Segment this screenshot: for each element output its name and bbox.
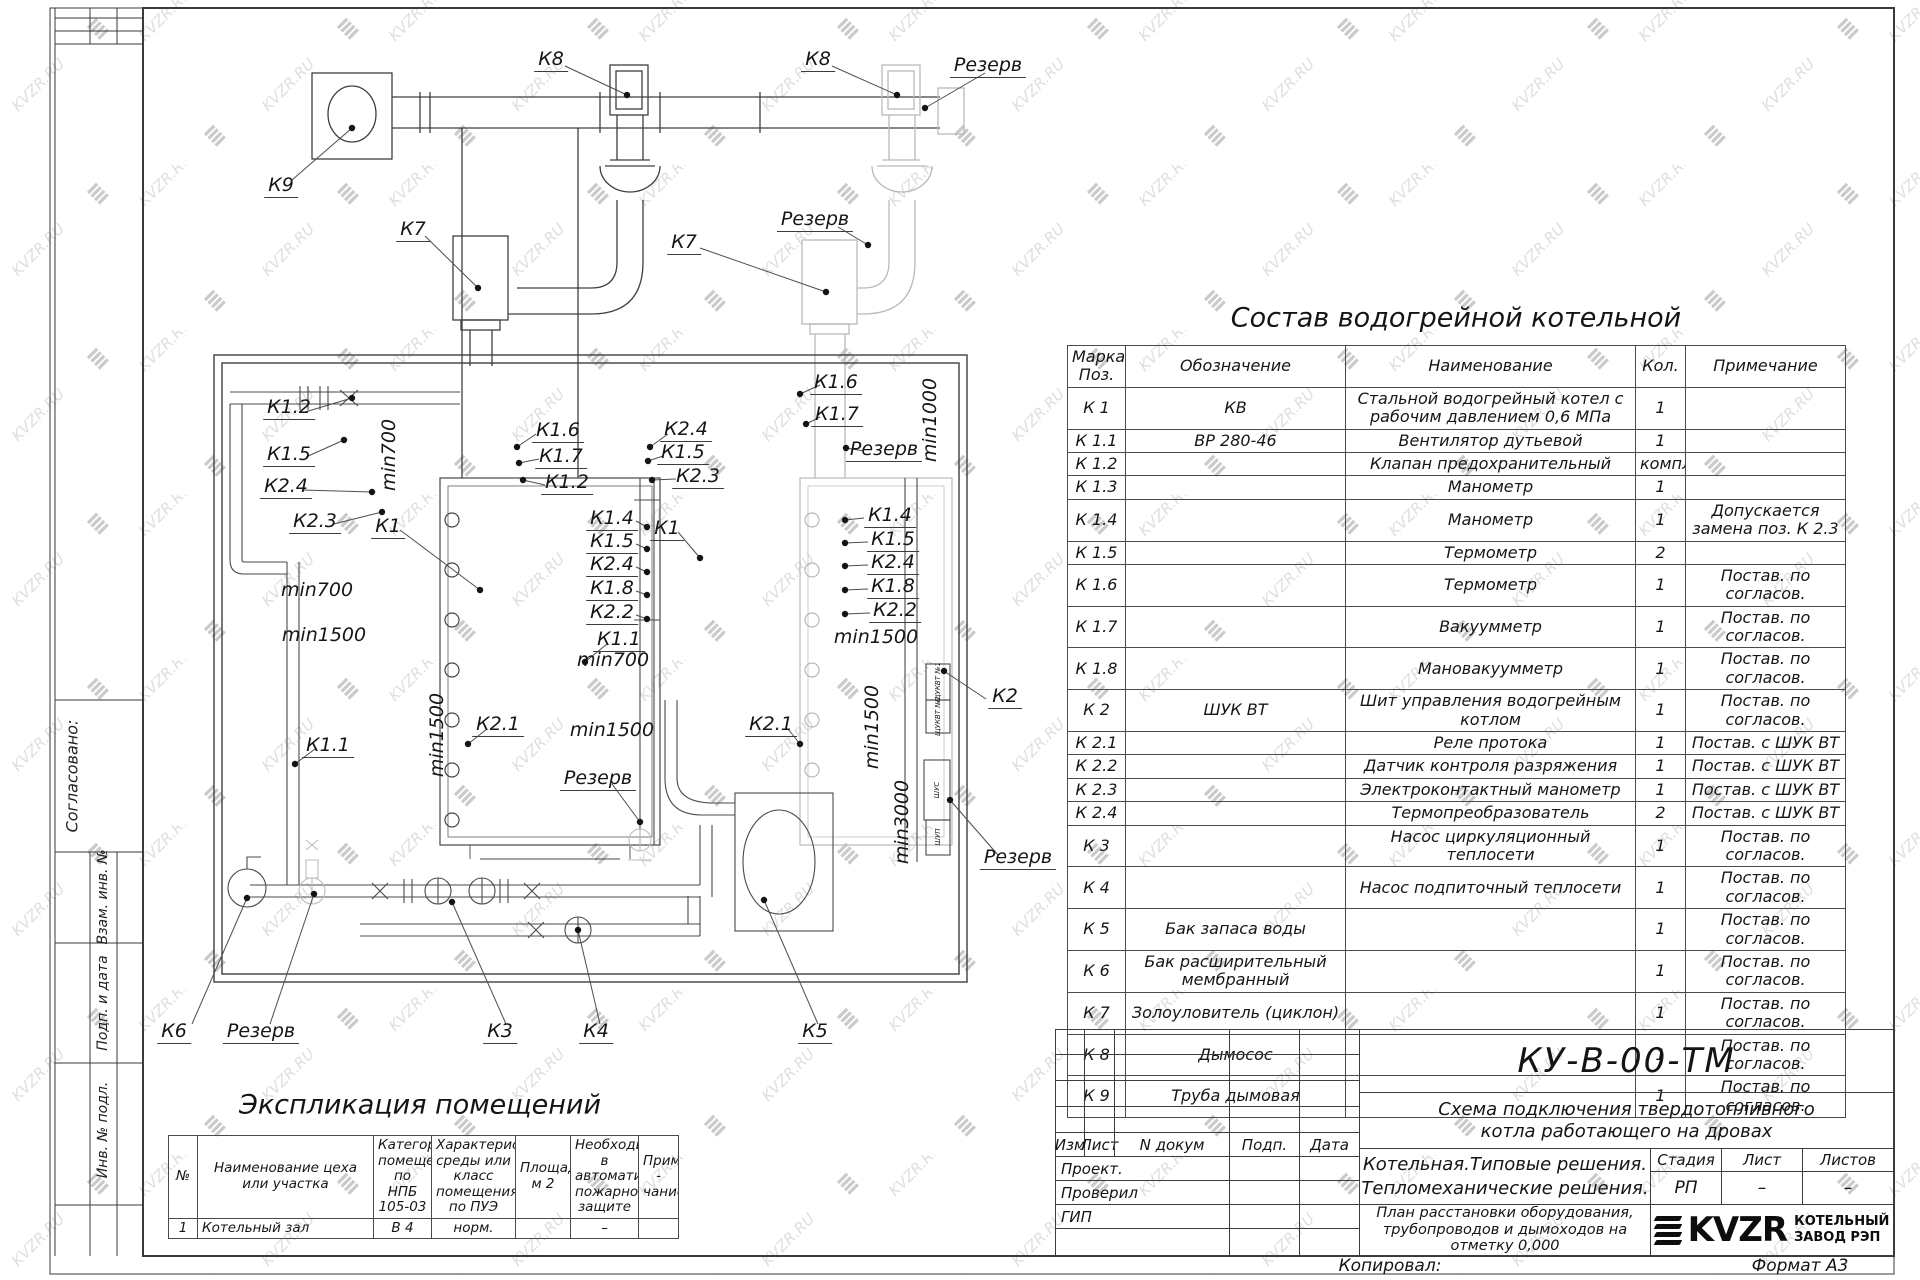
spec-cell: Постав. с ШУК ВТ [1686, 802, 1846, 825]
kvzr-logo: KVZR КОТЕЛЬНЫЙЗАВОД РЭП [1655, 1210, 1890, 1250]
spec-cell: К 1.7 [1068, 606, 1126, 648]
spec-row: К 1.2Клапан предохранительныйкомпл. [1068, 452, 1846, 475]
sidebar-agreed-label: Согласовано: [63, 720, 82, 833]
spec-cell: ВР 280-46 [1126, 429, 1346, 452]
spec-cell: К 4 [1068, 867, 1126, 909]
tb-col-ndokum: N докум [1114, 1132, 1230, 1157]
spec-cell: К 1.4 [1068, 499, 1126, 541]
spec-row: К 1.4Манометр1Допускается замена поз. К … [1068, 499, 1846, 541]
spec-cell [1126, 867, 1346, 909]
plan-label: К1.5 [263, 443, 315, 467]
spec-cell [1686, 387, 1846, 429]
cabinet-label: ЩУКВТ №2 [934, 696, 942, 736]
footer-copied-label: Копировал: [1339, 1256, 1442, 1276]
tb-row-proekt: Проект. [1055, 1156, 1230, 1181]
spec-cell: Термометр [1346, 564, 1636, 606]
plan-label: К2.4 [260, 475, 312, 499]
spec-cell: 1 [1636, 429, 1686, 452]
spec-cell: 1 [1636, 564, 1686, 606]
spec-cell: Манометр [1346, 499, 1636, 541]
plan-label: К1.8 [586, 577, 638, 601]
spec-cell [1126, 778, 1346, 801]
plan-label: К2.1 [472, 713, 524, 737]
plan-label: min1500 [282, 624, 366, 646]
spec-cell: К 2.3 [1068, 778, 1126, 801]
plan-label: min1500 [570, 719, 654, 741]
spec-cell [1126, 606, 1346, 648]
explication-header-row: №Наименование цеха или участкаКатегория … [169, 1136, 679, 1219]
spec-table: Марка Поз. Обозначение Наименование Кол.… [1067, 345, 1846, 1118]
plan-label: К7 [667, 231, 701, 255]
spec-cell: Шит управления водогрейным котлом [1346, 690, 1636, 732]
title-block: Изм Лист N докум Подп. Дата Проект. Пров… [1055, 1029, 1894, 1256]
spec-cell: Бак расширительный мембранный [1126, 950, 1346, 992]
spec-cell: К 1.6 [1068, 564, 1126, 606]
plan-label: К2 [988, 685, 1022, 709]
plan-label: Резерв [777, 208, 853, 232]
spec-cell: Стальной водогрейный котел с рабочим дав… [1346, 387, 1636, 429]
tb-drawing-title: План расстановки оборудования, трубопров… [1359, 1204, 1651, 1256]
plan-label: К8 [801, 48, 835, 72]
spec-cell: Постав. с ШУК ВТ [1686, 778, 1846, 801]
spec-cell: Клапан предохранительный [1346, 452, 1636, 475]
plan-label: К1.2 [263, 396, 315, 420]
plan-label: Резерв [846, 438, 922, 462]
plan-label: min1500 [426, 693, 448, 777]
cabinet-label: ШУС [933, 782, 941, 799]
plan-label: К1.6 [532, 419, 584, 443]
explication-title: Экспликация помещений [239, 1090, 601, 1121]
spec-cell: 1 [1636, 387, 1686, 429]
spec-cell: 1 [1636, 909, 1686, 951]
sidebar-section-vzam: Взам. инв. № [95, 849, 111, 944]
plan-label: К6 [157, 1020, 191, 1044]
spec-cell: Постав. по согласов. [1686, 690, 1846, 732]
spec-cell: К 2.4 [1068, 802, 1126, 825]
explication-cell [639, 1218, 679, 1239]
spec-cell [1126, 648, 1346, 690]
spec-cell [1686, 429, 1846, 452]
spec-cell: К 5 [1068, 909, 1126, 951]
explication-header-cell: Необходимость в автоматической пожарной … [571, 1136, 639, 1219]
spec-row: К 6Бак расширительный мембранный1Постав.… [1068, 950, 1846, 992]
spec-cell: К 1.2 [1068, 452, 1126, 475]
spec-cell: Термопреобразователь [1346, 802, 1636, 825]
spec-cell: 2 [1636, 541, 1686, 564]
plan-label: К2.2 [586, 601, 638, 625]
spec-cell: Постав. по согласов. [1686, 992, 1846, 1034]
spec-cell: Бак запаса воды [1126, 909, 1346, 951]
spec-cell: Постав. по согласов. [1686, 950, 1846, 992]
plan-label: min3000 [891, 780, 913, 864]
spec-cell: Датчик контроля разряжения [1346, 755, 1636, 778]
spec-cell: Мановакуумметр [1346, 648, 1636, 690]
tb-col-list: Лист [1084, 1132, 1115, 1157]
plan-label: К1.1 [302, 734, 354, 758]
cabinet-label: ШУП [934, 828, 942, 845]
plan-label: К1.5 [657, 441, 709, 465]
spec-cell: К 1.1 [1068, 429, 1126, 452]
plan-label: К7 [396, 218, 430, 242]
plan-label: К1.5 [867, 528, 919, 552]
spec-cell [1686, 541, 1846, 564]
spec-cell [1126, 825, 1346, 867]
spec-row: К 2.2Датчик контроля разряжения1Постав. … [1068, 755, 1846, 778]
spec-cell: Вакуумметр [1346, 606, 1636, 648]
spec-cell: Постав. по согласов. [1686, 867, 1846, 909]
spec-cell: Постав. с ШУК ВТ [1686, 755, 1846, 778]
plan-label: К3 [483, 1020, 517, 1044]
spec-header-qty: Кол. [1636, 346, 1686, 388]
spec-row: К 1.5Термометр2 [1068, 541, 1846, 564]
spec-cell: 1 [1636, 648, 1686, 690]
spec-cell [1126, 499, 1346, 541]
plan-label: К1.5 [586, 530, 638, 554]
tb-logo-cell: KVZR КОТЕЛЬНЫЙЗАВОД РЭП [1650, 1204, 1894, 1256]
plan-label: К2.4 [660, 418, 712, 442]
drawing-sheet: KVZR.RU KVZR.RU [0, 0, 1920, 1280]
spec-cell: 1 [1636, 992, 1686, 1034]
spec-cell [1126, 732, 1346, 755]
spec-cell: 1 [1636, 778, 1686, 801]
tb-row-proveril: Проверил [1055, 1180, 1230, 1205]
spec-cell: Постав. по согласов. [1686, 564, 1846, 606]
spec-cell: Постав. по согласов. [1686, 909, 1846, 951]
spec-row: К 1КВСтальной водогрейный котел с рабочи… [1068, 387, 1846, 429]
spec-cell: 1 [1636, 950, 1686, 992]
spec-cell: 1 [1636, 690, 1686, 732]
explication-header-cell: Характеристика среды или класс помещения… [432, 1136, 516, 1219]
explication-cell: Котельный зал [198, 1218, 374, 1239]
spec-cell [1126, 541, 1346, 564]
spec-row: К 1.3Манометр1 [1068, 476, 1846, 499]
spec-cell [1126, 755, 1346, 778]
spec-row: К 1.7Вакуумметр1Постав. по согласов. [1068, 606, 1846, 648]
spec-header-name: Наименование [1346, 346, 1636, 388]
plan-label: К1.6 [810, 371, 862, 395]
spec-cell [1126, 564, 1346, 606]
spec-row: К 4Насос подпиточный теплосети1Постав. п… [1068, 867, 1846, 909]
kvzr-logo-word: KVZR [1688, 1210, 1788, 1250]
plan-label: К1 [650, 517, 684, 541]
spec-row: К 2.4Термопреобразователь2Постав. с ШУК … [1068, 802, 1846, 825]
plan-label: К2.3 [672, 465, 724, 489]
spec-cell: Золоуловитель (циклон) [1126, 992, 1346, 1034]
spec-row: К 2.1Реле протока1Постав. с ШУК ВТ [1068, 732, 1846, 755]
spec-cell [1126, 476, 1346, 499]
spec-cell: Вентилятор дутьевой [1346, 429, 1636, 452]
spec-cell: 1 [1636, 606, 1686, 648]
spec-cell: Насос подпиточный теплосети [1346, 867, 1636, 909]
spec-cell: компл. [1636, 452, 1686, 475]
spec-row: К 3Насос циркуляционный теплосети1Постав… [1068, 825, 1846, 867]
spec-cell: К 1.3 [1068, 476, 1126, 499]
plan-label: min700 [281, 579, 353, 601]
plan-label: К2.3 [289, 510, 341, 534]
spec-cell [1686, 452, 1846, 475]
spec-header-row: Марка Поз. Обозначение Наименование Кол.… [1068, 346, 1846, 388]
spec-cell: К 6 [1068, 950, 1126, 992]
spec-header-mark: Марка Поз. [1068, 346, 1126, 388]
plan-label: К1.4 [586, 507, 638, 531]
plan-label: К1.7 [535, 445, 587, 469]
tb-stage-label: Стадия [1650, 1148, 1722, 1172]
spec-cell [1686, 476, 1846, 499]
tb-col-podp: Подп. [1229, 1132, 1300, 1157]
tb-col-data: Дата [1299, 1132, 1360, 1157]
explication-table: №Наименование цеха или участкаКатегория … [168, 1135, 679, 1239]
spec-header-note: Примечание [1686, 346, 1846, 388]
spec-cell: Электроконтактный манометр [1346, 778, 1636, 801]
spec-cell: Постав. по согласов. [1686, 648, 1846, 690]
spec-cell: К 2 [1068, 690, 1126, 732]
spec-cell: КВ [1126, 387, 1346, 429]
spec-row: К 1.6Термометр1Постав. по согласов. [1068, 564, 1846, 606]
tb-sheets-value: – [1802, 1171, 1894, 1205]
spec-cell: 1 [1636, 867, 1686, 909]
plan-label: Резерв [560, 767, 636, 791]
spec-cell: К 1.5 [1068, 541, 1126, 564]
tb-sheets-label: Листов [1802, 1148, 1894, 1172]
spec-cell [1346, 992, 1636, 1034]
spec-cell: 1 [1636, 825, 1686, 867]
spec-cell: Термометр [1346, 541, 1636, 564]
plan-label: К1.8 [867, 575, 919, 599]
tb-sheet-label: Лист [1721, 1148, 1803, 1172]
explication-row: 1Котельный залВ 4норм.– [169, 1218, 679, 1239]
explication-header-cell: Наименование цеха или участка [198, 1136, 374, 1219]
explication-header-cell: Категория помещения по НПБ 105-03 [374, 1136, 432, 1219]
spec-cell: 1 [1636, 732, 1686, 755]
spec-cell: 2 [1636, 802, 1686, 825]
spec-cell: ШУК ВТ [1126, 690, 1346, 732]
spec-cell: 1 [1636, 499, 1686, 541]
spec-cell: Постав. по согласов. [1686, 606, 1846, 648]
sidebar-section-podp: Подп. и дата [95, 955, 111, 1050]
kvzr-logo-icon [1655, 1216, 1681, 1245]
spec-cell [1126, 802, 1346, 825]
footer-format-label: Формат А3 [1752, 1256, 1849, 1276]
spec-cell: Насос циркуляционный теплосети [1346, 825, 1636, 867]
tb-subtitle: Схема подключения твердотопливногокотла … [1359, 1092, 1894, 1149]
spec-cell: Постав. по согласов. [1686, 825, 1846, 867]
spec-row: К 1.1ВР 280-46Вентилятор дутьевой1 [1068, 429, 1846, 452]
tb-org: Котельная.Типовые решения.Тепломеханичес… [1359, 1148, 1651, 1205]
sidebar-section-inv: Инв. № подл. [95, 1082, 111, 1179]
spec-cell: Допускается замена поз. К 2.3 [1686, 499, 1846, 541]
spec-cell: К 1.8 [1068, 648, 1126, 690]
plan-label: min1000 [919, 378, 941, 462]
explication-cell: В 4 [374, 1218, 432, 1239]
plan-label: К1.2 [541, 471, 593, 495]
explication-header-cell: Площадь, м 2 [516, 1136, 571, 1219]
spec-cell: К 2.1 [1068, 732, 1126, 755]
plan-label: К5 [798, 1020, 832, 1044]
tb-row-gip: ГИП [1055, 1204, 1230, 1229]
kvzr-logo-subtitle: КОТЕЛЬНЫЙЗАВОД РЭП [1794, 1214, 1889, 1247]
spec-row: К 5Бак запаса воды1Постав. по согласов. [1068, 909, 1846, 951]
spec-cell: К 2.2 [1068, 755, 1126, 778]
plan-label: Резерв [980, 846, 1056, 870]
spec-cell: Постав. с ШУК ВТ [1686, 732, 1846, 755]
spec-header-designation: Обозначение [1126, 346, 1346, 388]
explication-header-cell: Приме - чание [639, 1136, 679, 1219]
spec-cell: К 7 [1068, 992, 1126, 1034]
tb-stage-value: РП [1650, 1171, 1722, 1205]
plan-label: К2.4 [867, 551, 919, 575]
spec-cell [1346, 950, 1636, 992]
spec-cell: К 1 [1068, 387, 1126, 429]
spec-cell: 1 [1636, 755, 1686, 778]
spec-cell [1126, 452, 1346, 475]
plan-label: min700 [577, 649, 649, 671]
spec-cell: Манометр [1346, 476, 1636, 499]
tb-sheet-value: – [1721, 1171, 1803, 1205]
explication-header-cell: № [169, 1136, 198, 1219]
explication-cell [516, 1218, 571, 1239]
plan-label: К2.2 [869, 599, 921, 623]
plan-label: К4 [579, 1020, 613, 1044]
plan-label: К9 [264, 174, 298, 198]
spec-row: К 2.3Электроконтактный манометр1Постав. … [1068, 778, 1846, 801]
spec-row: К 7Золоуловитель (циклон)1Постав. по сог… [1068, 992, 1846, 1034]
plan-label: min1500 [834, 626, 918, 648]
explication-cell: 1 [169, 1218, 198, 1239]
spec-row: К 1.8Мановакуумметр1Постав. по согласов. [1068, 648, 1846, 690]
plan-label: К2.1 [745, 713, 797, 737]
plan-label: К2.4 [586, 553, 638, 577]
explication-cell: – [571, 1218, 639, 1239]
spec-row: К 2ШУК ВТШит управления водогрейным котл… [1068, 690, 1846, 732]
spec-cell: 1 [1636, 476, 1686, 499]
plan-label: min700 [378, 419, 400, 491]
plan-label: К1.7 [811, 403, 863, 427]
plan-label: min1500 [861, 685, 883, 769]
spec-table-title: Состав водогрейной котельной [1231, 303, 1681, 334]
plan-label: К8 [534, 48, 568, 72]
spec-cell [1346, 909, 1636, 951]
tb-doc-number: КУ-В-00-ТМ [1359, 1029, 1894, 1093]
plan-label: Резерв [223, 1020, 299, 1044]
explication-cell: норм. [432, 1218, 516, 1239]
plan-label: К1 [371, 515, 405, 539]
plan-label: К1.4 [864, 504, 916, 528]
spec-cell: Реле протока [1346, 732, 1636, 755]
spec-cell: К 3 [1068, 825, 1126, 867]
plan-label: Резерв [950, 54, 1026, 78]
